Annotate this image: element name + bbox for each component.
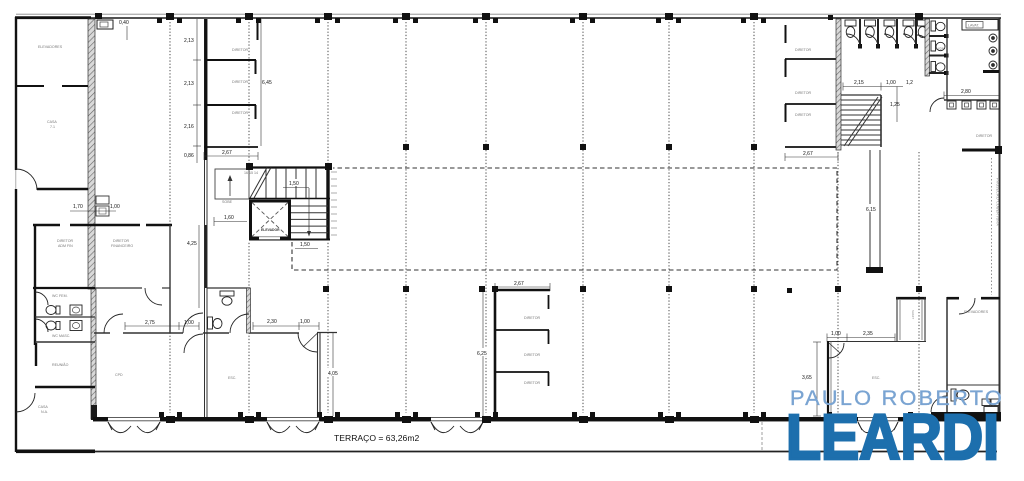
svg-text:2,35: 2,35 [863,331,873,337]
svg-text:1,50: 1,50 [300,242,310,248]
svg-text:4,25: 4,25 [187,241,197,247]
svg-text:2,30: 2,30 [267,319,277,325]
svg-text:2,15: 2,15 [854,80,864,86]
svg-text:DIRETOR: DIRETOR [795,91,812,95]
svg-text:REUNIÃO: REUNIÃO [52,362,69,367]
svg-text:TERRAÇO = 63,26m2: TERRAÇO = 63,26m2 [334,433,419,443]
svg-text:SOBE: SOBE [222,200,233,204]
svg-text:DIRETOR: DIRETOR [524,381,541,385]
svg-text:0,86: 0,86 [184,153,194,159]
svg-text:7.1: 7.1 [50,125,55,129]
svg-text:2,13: 2,13 [184,38,194,44]
svg-text:ADM FIN: ADM FIN [58,244,73,248]
svg-text:N.A.: N.A. [41,410,48,414]
svg-text:WC FEM.: WC FEM. [52,294,68,298]
svg-text:CASA: CASA [47,120,57,124]
svg-text:6,25: 6,25 [477,351,487,357]
svg-text:2,13: 2,13 [184,81,194,87]
svg-text:1,25: 1,25 [890,102,900,108]
svg-text:4,05: 4,05 [328,371,338,377]
svg-text:ELEVADORES: ELEVADORES [38,45,63,49]
svg-text:3,65: 3,65 [802,375,812,381]
svg-text:DIRETOR: DIRETOR [795,113,812,117]
svg-text:1,00: 1,00 [184,320,194,326]
svg-text:DIRETOR: DIRETOR [976,134,993,138]
svg-text:ELEVADORES: ELEVADORES [964,310,989,314]
svg-text:1,00: 1,00 [300,319,310,325]
svg-text:2,75: 2,75 [145,320,155,326]
svg-text:CPD: CPD [115,373,123,377]
svg-text:2,16: 2,16 [184,124,194,130]
svg-text:PROJECAO COBERTURA: PROJECAO COBERTURA [996,178,1000,226]
svg-text:6,15: 6,15 [866,207,876,213]
svg-text:1,70: 1,70 [73,204,83,210]
svg-text:LAVAT.: LAVAT. [968,24,979,28]
svg-text:H/28: H/28 [936,47,944,51]
svg-text:DIRETOR: DIRETOR [232,80,249,84]
svg-text:SHAFT: SHAFT [911,310,915,319]
svg-text:1,60: 1,60 [224,215,234,221]
svg-text:2,67: 2,67 [803,151,813,157]
svg-text:1,00: 1,00 [831,331,841,337]
svg-text:DIRETOR: DIRETOR [524,316,541,320]
svg-text:1,00: 1,00 [886,80,896,86]
svg-text:2,67: 2,67 [514,281,524,287]
svg-text:DIRETOR: DIRETOR [232,48,249,52]
svg-text:0,40: 0,40 [119,20,129,26]
svg-text:ELEVADOR: ELEVADOR [261,228,280,232]
svg-text:FINANCEIRO: FINANCEIRO [111,244,133,248]
svg-text:1,2: 1,2 [906,80,913,86]
svg-text:DIRETOR: DIRETOR [57,239,74,243]
svg-text:CASA: CASA [38,405,48,409]
svg-text:DIRETOR: DIRETOR [232,111,249,115]
svg-text:1,50: 1,50 [289,181,299,187]
svg-text:2,67: 2,67 [222,150,232,156]
svg-text:WC MASC.: WC MASC. [52,334,70,338]
svg-text:ESC.: ESC. [872,376,880,380]
svg-text:1,00: 1,00 [110,204,120,210]
svg-text:DIRETOR: DIRETOR [113,239,130,243]
svg-text:DIRETOR: DIRETOR [524,353,541,357]
svg-text:DIRETOR: DIRETOR [795,48,812,52]
svg-text:LEARDI: LEARDI [786,401,999,473]
svg-text:2,80: 2,80 [961,89,971,95]
svg-text:ESC.: ESC. [228,376,236,380]
svg-text:6,45: 6,45 [262,80,272,86]
svg-text:16 15 14: 16 15 14 [244,171,258,175]
